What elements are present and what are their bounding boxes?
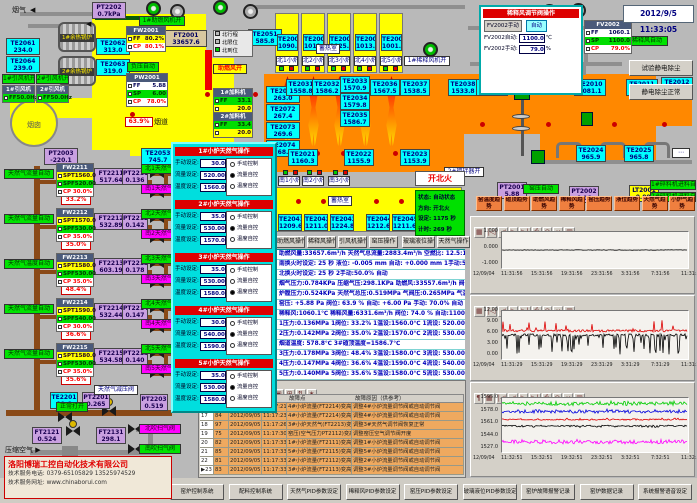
combustion-air-bar xyxy=(205,50,212,90)
status-label-5: 窑压自动 xyxy=(523,184,559,194)
burner-mode-radio[interactable]: 手动控制 xyxy=(227,159,271,170)
readout-te2005: TE20051001.7 xyxy=(381,34,402,51)
controller-pw2001: PW2001FF5.88SP6.00CP78.0% xyxy=(126,73,168,107)
readout-te2044: TE20441212.6 xyxy=(366,214,390,231)
info-row-11: 4压力:0.147MPa 4阀位: 36.6% 4温设:1590.0℃ 4流设:… xyxy=(277,360,465,370)
burner-mode-radio[interactable]: 温度自控 xyxy=(227,393,271,404)
chart-xtick: 7:31:29 xyxy=(651,363,670,368)
readout-te2073: TE2073269.6 xyxy=(266,122,300,139)
burner-mode-radiogroup: 手动控制流量自控温度自控 xyxy=(226,317,272,355)
alarm-row-22[interactable]: 22812012/09/0511:17:332#小炉流量(FT2112)变高成立… xyxy=(200,457,464,466)
burner-setpoint-input[interactable]: 35.0 xyxy=(200,371,226,380)
chart-xtick: 15:32:51 xyxy=(531,456,553,461)
status-label-10: 南吹扫气阀 xyxy=(139,444,181,454)
fan-icon xyxy=(213,0,228,15)
alarm-col-fault: 故障点 xyxy=(289,395,306,403)
readout-te2032: TE20321586.2 xyxy=(312,79,342,96)
chart-xtick: 3:32:51 xyxy=(621,456,640,461)
stirrer-blade-icon xyxy=(512,126,530,131)
chart-xtick: 3:31:56 xyxy=(621,272,640,277)
dilution-mode-value: 自动 xyxy=(526,20,547,32)
status-label-41: 天然气减压阀 xyxy=(94,385,138,395)
fan-icon xyxy=(243,4,258,19)
burner-mode-radio[interactable]: 手动控制 xyxy=(227,212,271,223)
status-label-3: 负压自动 xyxy=(127,62,159,72)
chart-ytick: 0.000 xyxy=(472,244,498,250)
info-row-0: 助燃风量:33657.6m³/h 天然气总流量:2883.4m³/h 空燃比: … xyxy=(277,250,465,260)
chart-xtick: 19:31:56 xyxy=(561,272,583,277)
port-status-green xyxy=(279,66,284,71)
vendor-phone: 技术服务电话: 0379-65105829 13525974529 xyxy=(8,470,168,479)
readout-te2038: TE20381533.8 xyxy=(448,79,478,96)
status-label-0: 1#引风机开 xyxy=(2,74,35,84)
burner-setpoint-input[interactable]: 30.0 xyxy=(200,159,226,168)
burner-popup-section-4: 4#小炉天然气操作手动设定:30.0%流量设定:540.00m³/h温度设定:1… xyxy=(175,306,273,357)
burner-mode-radio[interactable]: 温度自控 xyxy=(227,234,271,245)
status-label-37: 南1小炉 xyxy=(278,176,300,186)
chart-xtick: 11:31:56 xyxy=(501,272,523,277)
burner-mode-radio[interactable]: 流量自控 xyxy=(227,329,271,340)
status-label-6: 1#碎料机进料自动 xyxy=(650,180,696,190)
status-label-44: 63.9% xyxy=(125,117,153,127)
port-status-green xyxy=(305,66,310,71)
port-status-green xyxy=(357,66,362,71)
controller-fw2001: FW2001FF80.2%CP80.1% xyxy=(126,26,166,52)
chart-xdate: 12/09/04 xyxy=(473,456,495,461)
port-status-red xyxy=(317,170,322,175)
junction-dot xyxy=(546,122,551,127)
trend-button-1[interactable]: 碹顶趋势 xyxy=(504,196,530,211)
nav-button-4[interactable]: 窑压PID参数设定 xyxy=(404,484,458,500)
readout-te2072: TE2072267.4 xyxy=(266,104,300,121)
batch-feed-pipe xyxy=(540,160,692,164)
nav-button-3[interactable]: 稀释风PID参数设定 xyxy=(346,484,400,500)
burner-mode-radio[interactable]: 流量自控 xyxy=(227,223,271,234)
fan-icon xyxy=(146,1,161,16)
burner-setpoint-input[interactable]: 1580.0 xyxy=(200,289,226,298)
burner-setpoint-input[interactable]: 1580.0 xyxy=(200,395,226,404)
junction-dot xyxy=(612,122,617,127)
controller-2#引风机: 2#引风机FF50.0Hz xyxy=(36,85,69,103)
text-label: 压缩空气 ▶ xyxy=(5,445,41,455)
junction-dot xyxy=(296,199,301,204)
status-label-36: 北5小炉 xyxy=(380,56,402,66)
chimney: 烟囱 xyxy=(10,99,58,147)
dilution-mode-button[interactable]: FV2002手动 xyxy=(484,20,522,32)
chart-ytick: 1.000 xyxy=(472,228,498,234)
junction-dot xyxy=(662,122,667,127)
fire-direction-box: 开北火 xyxy=(415,171,465,186)
info-row-5: 窑压: +5.88 Pa 阀位: 63.9 % 自动: +6.00 Pa 手动:… xyxy=(277,300,465,310)
status-label-35: 北4小炉 xyxy=(354,56,376,66)
trend-chart-1: ▦|◁◁▷▷|⎙⊙↔▥12.009.006.003.000.0012/09/04… xyxy=(470,295,695,381)
info-row-12: 5压力:0.140MPa 5阀位: 35.6% 5温设:1580.0℃ 5流设:… xyxy=(277,370,465,380)
controller-1#引风机: 1#引风机FF50.0Hz xyxy=(2,85,35,103)
alarm-row-20[interactable]: 20822012/09/0511:17:331#小炉流量(FT2111)变高成立… xyxy=(200,439,464,448)
burner-gas-popup: 1#小炉天然气操作手动设定:30.0%流量设定:520.00m³/h温度设定:1… xyxy=(171,142,277,413)
port-status-red xyxy=(315,66,320,71)
dilution-popup-title: 稀释风调节阀操作 xyxy=(483,9,579,18)
info-row-6: 稀释风:1060.1℃ 稀释风量:6331.6m³/h 阀位: 74.0 % 自… xyxy=(277,310,465,320)
burner-setpoint-input[interactable]: 530.00 xyxy=(200,277,226,286)
burner-mode-radiogroup: 手动控制流量自控温度自控 xyxy=(226,158,272,196)
burner-mode-radio[interactable]: 温度自控 xyxy=(227,287,271,298)
text-label: 烟气 xyxy=(12,5,26,15)
port-status-red xyxy=(289,66,294,71)
status-label-38: 南2小炉 xyxy=(302,176,324,186)
status-label-11: 天然气流量自动 xyxy=(4,169,54,179)
chart-ytick: 1595.0 xyxy=(472,394,498,400)
status-label-13: 天然气温度自动 xyxy=(4,259,54,269)
aux-button-1[interactable]: 静电除尘正常 xyxy=(629,84,693,100)
burner-mode-radiogroup: 手动控制流量自控温度自控 xyxy=(226,211,272,249)
nav-button-6[interactable]: 窑炉故障报警记录 xyxy=(521,484,575,500)
info-row-3: 烟气压力:0.784KPa 压缩气压:298.1KPa 助燃风:33557.6m… xyxy=(277,280,465,290)
readout-te2021: TE20211160.3 xyxy=(288,149,318,166)
trend-button-4[interactable]: 窑压趋势 xyxy=(586,196,612,211)
readout-te2025: TE2025965.8 xyxy=(624,145,654,162)
burner-setpoint-input[interactable]: 530.00 xyxy=(200,224,226,233)
status-label-31: 蓄热室 xyxy=(328,196,352,206)
op-button-3[interactable]: 窑压操作 xyxy=(369,236,398,248)
chart-xtick: 15:31:29 xyxy=(531,363,553,368)
stirrer-motor-icon xyxy=(531,150,545,164)
port-status-red xyxy=(293,170,298,175)
stirrer-blade-icon xyxy=(512,114,530,119)
dilution-valve-popup: 稀释风调节阀操作FV2002手动自动FV2002自动:1100.0℃FV2002… xyxy=(479,5,583,95)
junction-dot xyxy=(480,122,485,127)
burner-setpoint-input[interactable]: 1590.0 xyxy=(200,342,226,351)
nav-button-7[interactable]: 窑炉数据记录 xyxy=(580,484,634,500)
readout-te2001: TE20011090.1 xyxy=(277,34,298,51)
burner-mode-radio[interactable]: 手动控制 xyxy=(227,371,271,382)
junction-dot xyxy=(393,151,398,156)
nav-button-1[interactable]: 配料控制系统 xyxy=(229,484,283,500)
chart-ytick: 12.00 xyxy=(472,307,498,313)
datetime-display: 2012/9/5 11:33:05 xyxy=(623,5,694,23)
readout-te2042: TE20421211.0 xyxy=(304,214,328,231)
status-label-39: 南3小炉 xyxy=(328,176,350,186)
controller-fv2002: FV2002FF1060.1SP1100.0CP79.0% xyxy=(584,20,632,54)
status-label-32: 北1小炉 xyxy=(276,56,298,66)
chart-plot-area xyxy=(501,310,689,360)
controller-fw2211: FW2211SPT1560.0SPF520.00CP30.0% xyxy=(56,163,94,197)
chart-ytick: 3.00 xyxy=(472,340,498,346)
junction-dot xyxy=(205,92,210,97)
readout-te2061: TE2061234.0 xyxy=(6,38,40,55)
chart-ytick: 1561.0 xyxy=(472,419,498,425)
burner-mode-radio[interactable]: 手动控制 xyxy=(227,318,271,329)
alarm-col-reason: 故障原因（供参考） xyxy=(355,395,405,403)
burner-setpoint-input[interactable]: 530.00 xyxy=(200,383,226,392)
burner-mode-radio[interactable]: 流量自控 xyxy=(227,276,271,287)
readout-te2004: TE20041013.3 xyxy=(355,34,376,51)
readout-te2063: TE2063319.0 xyxy=(96,59,130,76)
junction-dot xyxy=(253,92,258,97)
info-row-2: 北换火时设定: 25 秒 2手动:50.0% 自动 xyxy=(277,270,465,280)
status-label-15: 天然气流量自动 xyxy=(4,349,54,359)
port-status-red xyxy=(367,66,372,71)
burner-mode-radio[interactable]: 温度自控 xyxy=(227,340,271,351)
port-status-green xyxy=(333,170,338,175)
readout-te2033: TE20331570.9 xyxy=(340,76,370,93)
chart-xtick: 23:31:29 xyxy=(591,363,613,368)
trend-button-3[interactable]: 稀释风趋势 xyxy=(559,196,585,211)
burner-mode-radio[interactable]: 流量自控 xyxy=(227,382,271,393)
chart-ytick: 1578.0 xyxy=(472,407,498,413)
status-label-1: 2#引风机开 xyxy=(36,74,69,84)
aux-button-0[interactable]: 试验静电除尘 xyxy=(629,60,693,76)
info-row-10: 3压力:0.178MPa 3阀位: 48.4% 3温设:1580.0℃ 3流设:… xyxy=(277,350,465,360)
gas-main-riser xyxy=(34,166,40,412)
burner-popup-section-2: 2#小炉天然气操作手动设定:35.0%流量设定:530.00m³/h温度设定:1… xyxy=(175,200,273,251)
controller-fw2215: FW2215SPT1580.0SPF530.00CP35.0% xyxy=(56,343,94,377)
status-label-51: 助燃风开 xyxy=(213,64,247,74)
controller-fw2212: FW2212SPT1570.0SPF530.00CP35.0% xyxy=(56,208,94,242)
burner-popup-section-5: 5#小炉天然气操作手动设定:35.0%流量设定:530.00m³/h温度设定:1… xyxy=(175,359,273,410)
info-row-4: 炉膛压力:0.524KPa 天然气总压:0.519MPa 气阀压:0.265MP… xyxy=(277,290,465,300)
readout-te2043: TE20431224.8 xyxy=(330,214,354,231)
burner-mode-radio[interactable]: 手动控制 xyxy=(227,265,271,276)
status-label-30: 蓄热室 xyxy=(316,44,340,54)
dilution-setpoint-input[interactable]: 1100.0 xyxy=(519,34,545,43)
chart-ytick: 9.00 xyxy=(472,318,498,324)
readout-te2023: TE20231153.9 xyxy=(400,149,430,166)
status-label-8: 正常打开 xyxy=(56,402,88,412)
readout-te2022: TE20221155.9 xyxy=(344,149,374,166)
readout-te2062: TE2062313.0 xyxy=(96,38,130,55)
status-label-14: 天然气流量自动 xyxy=(4,304,54,314)
chart-xtick: 19:32:51 xyxy=(561,456,583,461)
port-status-red xyxy=(341,66,346,71)
status-label-26: 1#稀释风机开 xyxy=(404,56,450,66)
chart-xtick: 7:32:51 xyxy=(651,456,670,461)
status-label-33: 北2小炉 xyxy=(302,56,324,66)
controller-fw2213: FW2213SPT1580.0SPF530.00CP35.0% xyxy=(56,253,94,287)
chart-ytick: 0.00 xyxy=(472,351,498,357)
chart-ytick: 1527.0 xyxy=(472,444,498,450)
limit-legend: 北行程北限位北到位 xyxy=(213,30,253,57)
chart-ytick: -1.000 xyxy=(472,260,498,266)
chart-xtick: 19:31:29 xyxy=(561,363,583,368)
trend-chart-0: ▦|◁◁▷▷|⎙⊙↔▥1.0000.000-1.00012/09/0411:31… xyxy=(470,216,695,294)
controller-fw2214: FW2214SPT1590.0SPF540.00CP30.0% xyxy=(56,298,94,332)
alarm-row-23[interactable]: ▶23832012/09/0511:17:333#小炉流量(FT2113)变高成… xyxy=(200,466,464,475)
readout-ft2121: FT21210.524 xyxy=(32,427,62,444)
burner-setpoint-input[interactable]: 30.0 xyxy=(200,318,226,327)
readout-te2035: TE20351586.7 xyxy=(340,110,370,127)
chart-xdate: 12/09/04 xyxy=(473,272,495,277)
burner-setpoint-input[interactable]: 35.0 xyxy=(200,212,226,221)
chart-xtick: 11:31:29 xyxy=(681,363,697,368)
nav-button-0[interactable]: 窑炉控制系统 xyxy=(170,484,224,500)
alarm-row-21[interactable]: 21852012/09/0511:17:335#小炉流量(FT2115)变高成立… xyxy=(200,448,464,457)
vendor-info: 洛阳博瑞工控自动化技术有限公司 技术服务电话: 0379-65105829 13… xyxy=(4,456,172,499)
chart-xtick: 11:32:51 xyxy=(681,456,697,461)
burner-setpoint-input[interactable]: 1560.0 xyxy=(200,183,226,192)
text-label: 烟道 xyxy=(154,117,168,127)
chart-xtick: 7:31:56 xyxy=(651,272,670,277)
fan-icon xyxy=(423,42,438,57)
junction-dot xyxy=(321,199,326,204)
valve-handle-icon xyxy=(69,420,77,428)
chart-xtick: 11:32:51 xyxy=(501,456,523,461)
readout-ft2131: FT2131298.1 xyxy=(96,427,126,444)
reversal-status-box: 状态: 自动状态方向: 开北火设定: 1175 秒计时: 269 秒 xyxy=(415,190,465,236)
scada-furnace-screen: 2012/9/5 11:33:05 洛阳博瑞工控自动化技术有限公司 技术服务电话… xyxy=(0,0,697,503)
readout-ft2001: FT200133657.6 xyxy=(165,30,207,47)
chart-ytick: 1544.0 xyxy=(472,432,498,438)
trend-button-6[interactable]: 天然气趋势 xyxy=(642,196,668,211)
burner-popup-section-3: 3#小炉天然气操作手动设定:35.0%流量设定:530.00m³/h温度设定:1… xyxy=(175,253,273,304)
chart-xtick: 23:31:56 xyxy=(591,272,613,277)
status-label-12: 天然气流量自动 xyxy=(4,214,54,224)
burner-setpoint-input[interactable]: 540.00 xyxy=(200,330,226,339)
readout-pt2203: PT22030.519 xyxy=(140,394,168,411)
info-row-8: 2压力:0.142MPa 2阀位: 35.0% 2温设:1570.0℃ 2流设:… xyxy=(277,330,465,340)
trend-button-5[interactable]: 液位趋势 xyxy=(614,196,640,211)
air-header-pipe xyxy=(250,5,465,9)
trend-button-0[interactable]: 窑温度趋势 xyxy=(476,196,502,211)
readout-te2053: TE2053745.7 xyxy=(141,148,175,165)
nav-button-5[interactable]: 玻璃液位PID参数设定 xyxy=(463,484,517,500)
controller-1#加料机: 1#加料机FF33.120.0 xyxy=(213,88,253,114)
op-button-2[interactable]: 引风机操作 xyxy=(338,236,367,248)
junction-dot xyxy=(399,199,404,204)
chart-xtick: 15:31:56 xyxy=(531,272,553,277)
info-row-1: 南换火时设定: 25 秒 液位: -0.005 mm 自动: +0.000 mm… xyxy=(277,260,465,270)
trend-button-2[interactable]: 助燃风趋势 xyxy=(531,196,557,211)
chart-xdate: 12/09/04 xyxy=(473,363,495,368)
trend-chart-2: ¶▦|◁◁▷▷|⎙⊙↔▥1595.01578.01561.01544.01527… xyxy=(470,382,695,477)
dilution-setpoint-input[interactable]: 79.0 xyxy=(519,45,545,54)
burner-mode-radio[interactable]: 流量自控 xyxy=(227,170,271,181)
alarm-row-19[interactable]: 19752012/09/0511:17:30窑压(空气压力PT2112)变高成立… xyxy=(200,430,464,439)
nav-button-2[interactable]: 天然气PID参数设定 xyxy=(287,484,341,500)
chart-xtick: 11:31:29 xyxy=(501,363,523,368)
text-label: ◀ xyxy=(86,20,91,28)
port-status-green xyxy=(283,170,288,175)
op-button-5[interactable]: 天然气操作 xyxy=(437,236,470,248)
burner-setpoint-input[interactable]: 1570.0 xyxy=(200,236,226,245)
port-status-green xyxy=(307,170,312,175)
trend-button-7[interactable]: 小炉气趋势 xyxy=(669,196,695,211)
readout-te2041: TE20411209.6 xyxy=(278,214,302,231)
burner-mode-radio[interactable]: 温度自控 xyxy=(227,181,271,192)
alarm-row-18[interactable]: 18972012/09/0511:17:263#小炉天然气(FT2213)变高成… xyxy=(200,421,464,430)
alarm-row-17[interactable]: 17842012/09/0511:17:234#小炉流量(FT2214)变高成立… xyxy=(200,412,464,421)
port-status-green xyxy=(331,66,336,71)
stirrer-motor-icon xyxy=(581,112,593,126)
port-status-green xyxy=(383,66,388,71)
controller-2#加料机: 2#加料机FF33.420.0 xyxy=(213,112,253,138)
info-row-9: 烟道温度: 578.8℃ 3#碹顶温度=1586.7℃ xyxy=(277,340,465,350)
op-button-4[interactable]: 玻璃液位操作 xyxy=(402,236,435,248)
readout-te2036: TE20361567.5 xyxy=(370,79,400,96)
vendor-web: 技术服务网址: www.chinaborui.com xyxy=(8,479,168,488)
op-button-1[interactable]: 稀释风操作 xyxy=(307,236,336,248)
readout-te2045: TE20451211.6 xyxy=(392,214,416,231)
readout-te2034: TE20341579.8 xyxy=(340,93,370,110)
chart-xtick: 3:31:29 xyxy=(621,363,640,368)
text-label: ◀ xyxy=(30,6,35,14)
vendor-name: 洛阳博瑞工控自动化技术有限公司 xyxy=(8,459,168,470)
status-label-9: 北吹扫气阀 xyxy=(139,424,181,434)
burner-mode-radiogroup: 手动控制流量自控温度自控 xyxy=(226,264,272,302)
port-status-red xyxy=(393,66,398,71)
burner-mode-radiogroup: 手动控制流量自控温度自控 xyxy=(226,370,272,408)
junction-dot xyxy=(374,199,379,204)
chart-ytick: 6.00 xyxy=(472,329,498,335)
status-label-34: 北3小炉 xyxy=(328,56,350,66)
readout-te2037: TE20371538.5 xyxy=(400,79,430,96)
op-button-0[interactable]: 助燃风操作 xyxy=(276,236,305,248)
info-row-7: 1压力:0.136MPa 1阀位: 33.2% 1温设:1560.0℃ 1流设:… xyxy=(277,320,465,330)
process-info-panel: 助燃风量:33657.6m³/h 天然气总流量:2883.4m³/h 空燃比: … xyxy=(276,249,465,380)
status-label-2: 1#助燃风机开 xyxy=(139,16,185,26)
chart-plot-area xyxy=(501,397,689,453)
burner-setpoint-input[interactable]: 520.00 xyxy=(200,171,226,180)
port-status-red xyxy=(343,170,348,175)
readout-pt2202: PT22020.7kPa xyxy=(92,2,126,19)
chart-xtick: 23:32:51 xyxy=(591,456,613,461)
nav-button-8[interactable]: 系统报警语音设定 xyxy=(638,484,692,500)
chart-plot-area xyxy=(501,231,689,269)
burner-popup-section-1: 1#小炉天然气操作手动设定:30.0%流量设定:520.00m³/h温度设定:1… xyxy=(175,147,273,198)
status-label-43: ⋯ xyxy=(672,148,690,158)
burner-setpoint-input[interactable]: 35.0 xyxy=(200,265,226,274)
readout-te2064: TE2064239.0 xyxy=(6,56,40,73)
chart-xtick: 11:31:56 xyxy=(681,272,697,277)
readout-te2024: TE2024965.9 xyxy=(576,145,606,162)
